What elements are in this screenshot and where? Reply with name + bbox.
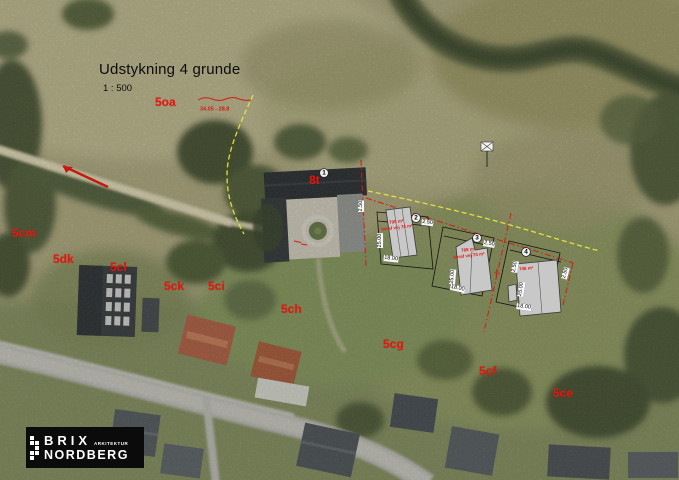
site-plan-map: Udstykning 4 grunde 1 : 500 34.05 - 28.8… xyxy=(0,0,679,480)
plot-number-4: 4 xyxy=(521,247,531,257)
logo-tagline: ARKITEKTUR xyxy=(94,441,128,446)
dim-label: 2.50 xyxy=(358,200,364,212)
plot-number-3: 3 xyxy=(472,233,482,243)
plot-number-2: 2 xyxy=(411,213,421,223)
dim-label: 2.50 xyxy=(421,219,433,226)
boundary-dimension-note: 34.05 - 28.8 xyxy=(200,106,229,112)
parcel-label-5ci: 5ci xyxy=(208,280,225,293)
parcel-label-5ce: 5ce xyxy=(553,387,573,400)
red-arrow xyxy=(63,166,108,187)
brix-nordberg-logo: BRIX ARKITEKTUR NORDBERG xyxy=(26,427,144,468)
page-title: Udstykning 4 grunde xyxy=(99,62,240,79)
parcel-label-5dk: 5dk xyxy=(53,253,74,266)
logo-line2: NORDBERG xyxy=(44,449,163,462)
plot-number-1: 1 xyxy=(319,168,329,178)
yellow-boundary-line xyxy=(227,95,600,251)
parcel-label-5cm: 5cm xyxy=(12,227,36,240)
utility-pole-icon xyxy=(481,142,493,167)
parcel-label-5oa: 5oa xyxy=(155,96,176,109)
logo-text: BRIX ARKITEKTUR NORDBERG xyxy=(44,434,163,462)
parcel-label-5cg: 5cg xyxy=(383,338,404,351)
dim-label: 25.00 xyxy=(377,233,383,248)
red-scribble-line xyxy=(198,98,251,101)
map-scale: 1 : 500 xyxy=(103,84,132,94)
parcel-label-8t: 8t xyxy=(309,174,320,187)
parcel-label-5ch: 5ch xyxy=(281,303,302,316)
logo-pattern xyxy=(30,436,39,460)
parcel-label-5cl: 5cl xyxy=(110,261,127,274)
parcel-label-5ck: 5ck xyxy=(164,280,184,293)
parcel-label-5cf: 5cf xyxy=(479,365,496,378)
logo-line1: BRIX xyxy=(44,434,91,447)
